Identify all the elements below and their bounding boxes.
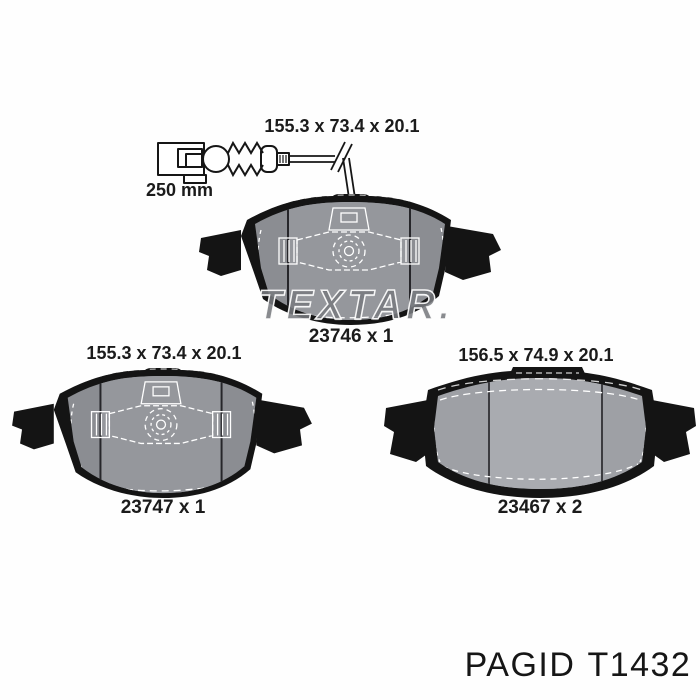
textar-watermark: TEXTAR. [258, 283, 454, 330]
dimension-label-23467: 156.5 x 74.9 x 20.1 [458, 345, 613, 366]
brake-pad-23467-illustration [382, 366, 698, 506]
part-quantity-label-23747: 23747 x 1 [121, 497, 206, 519]
brand-part-label: PAGIDT1432 [465, 646, 692, 685]
dimension-label-23747: 155.3 x 73.4 x 20.1 [86, 343, 241, 364]
brake-pad-23747-illustration [8, 368, 318, 505]
part-quantity-label-23467: 23467 x 2 [498, 497, 583, 519]
part-code: T1432 [587, 646, 691, 684]
brand-name: PAGID [465, 646, 576, 684]
product-image: 155.3 x 73.4 x 20.1 [0, 0, 700, 700]
